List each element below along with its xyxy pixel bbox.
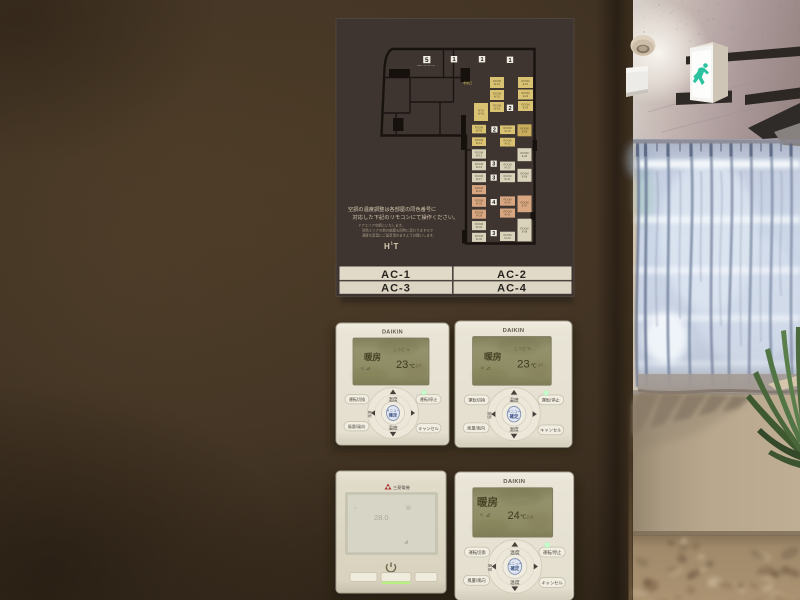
svg-text:W-25: W-25	[476, 201, 483, 205]
svg-text:AC-3: AC-3	[381, 283, 411, 295]
svg-text:E-01: E-01	[523, 82, 529, 86]
svg-text:▤: ▤	[406, 505, 411, 511]
svg-text:W-09: W-09	[476, 129, 483, 133]
svg-text:AC-1: AC-1	[381, 269, 411, 281]
svg-text:空調の温度調整は各部屋の同色番号に: 空調の温度調整は各部屋の同色番号に	[348, 205, 436, 213]
svg-text:適度な室温にご留意頂きますようお願いします。: 適度な室温にご留意頂きますようお願いします。	[362, 233, 436, 238]
svg-text:AC-4: AC-4	[497, 283, 527, 295]
svg-text:E-06: E-06	[522, 175, 528, 179]
svg-text:W-21: W-21	[504, 177, 511, 181]
svg-text:☼: ☼	[479, 512, 484, 518]
svg-text:W-01: W-01	[494, 82, 501, 86]
svg-text:24: 24	[508, 510, 520, 522]
svg-text:E-08: E-08	[522, 229, 528, 233]
svg-text:W-20: W-20	[504, 165, 511, 169]
svg-text:ドアエリア空調といたします。: ドアエリア空調といたします。	[358, 223, 405, 228]
svg-text:3: 3	[492, 231, 495, 237]
svg-text:2: 2	[493, 127, 496, 133]
svg-text:E-07: E-07	[522, 203, 528, 207]
svg-text:W-24: W-24	[476, 189, 483, 193]
svg-text:W-10: W-10	[504, 129, 511, 133]
svg-text:W-16: W-16	[476, 165, 483, 169]
svg-text:T: T	[394, 242, 399, 251]
svg-text:1: 1	[452, 57, 455, 63]
svg-text:W-03: W-03	[494, 106, 501, 110]
svg-text:W-13: W-13	[476, 153, 483, 157]
svg-text:⌂: ⌂	[354, 505, 357, 511]
svg-text:AC-2: AC-2	[497, 269, 527, 281]
svg-text:W-28: W-28	[476, 214, 483, 218]
svg-text:E-04: E-04	[522, 130, 528, 134]
svg-text:非常口: 非常口	[463, 80, 472, 85]
svg-text:1: 1	[508, 58, 511, 64]
svg-text:E-02: E-02	[523, 94, 529, 98]
svg-text:3: 3	[492, 176, 495, 182]
svg-text:E-03: E-03	[523, 105, 529, 109]
svg-text:3: 3	[492, 162, 495, 168]
svg-text:5: 5	[425, 57, 429, 64]
svg-text:W-31: W-31	[504, 212, 511, 216]
svg-text:W-36: W-36	[476, 237, 483, 241]
svg-text:W-11: W-11	[505, 142, 512, 146]
svg-text:W-40: W-40	[504, 236, 511, 240]
svg-text:W-06: W-06	[478, 111, 485, 115]
svg-text:1: 1	[480, 57, 483, 63]
svg-text:W-17: W-17	[476, 177, 483, 181]
svg-text:℃: ℃	[520, 515, 526, 521]
svg-text:H: H	[384, 242, 390, 251]
svg-text:4: 4	[492, 200, 495, 206]
svg-text:三菱電機: 三菱電機	[393, 484, 411, 491]
svg-text:同色エリアの他の部屋も同時に変わりますので: 同色エリアの他の部屋も同時に変わりますので	[362, 228, 434, 233]
svg-text:暖房: 暖房	[477, 496, 498, 509]
svg-text:W-12: W-12	[476, 141, 483, 145]
svg-text:対応した下記のリモコンにて操作ください。: 対応した下記のリモコンにて操作ください。	[353, 213, 459, 221]
svg-text:2.8: 2.8	[526, 515, 533, 521]
svg-text:MEETING ROOM: MEETING ROOM	[417, 65, 435, 67]
svg-text:W-02: W-02	[494, 94, 501, 98]
svg-text:W-30: W-30	[504, 200, 511, 204]
svg-text:⊿: ⊿	[485, 513, 489, 519]
svg-text:2: 2	[508, 106, 511, 112]
svg-text:◢: ◢	[404, 539, 408, 545]
svg-text:28.0: 28.0	[374, 513, 389, 522]
svg-text:E-05: E-05	[522, 154, 528, 158]
svg-text:W-33: W-33	[476, 225, 483, 229]
